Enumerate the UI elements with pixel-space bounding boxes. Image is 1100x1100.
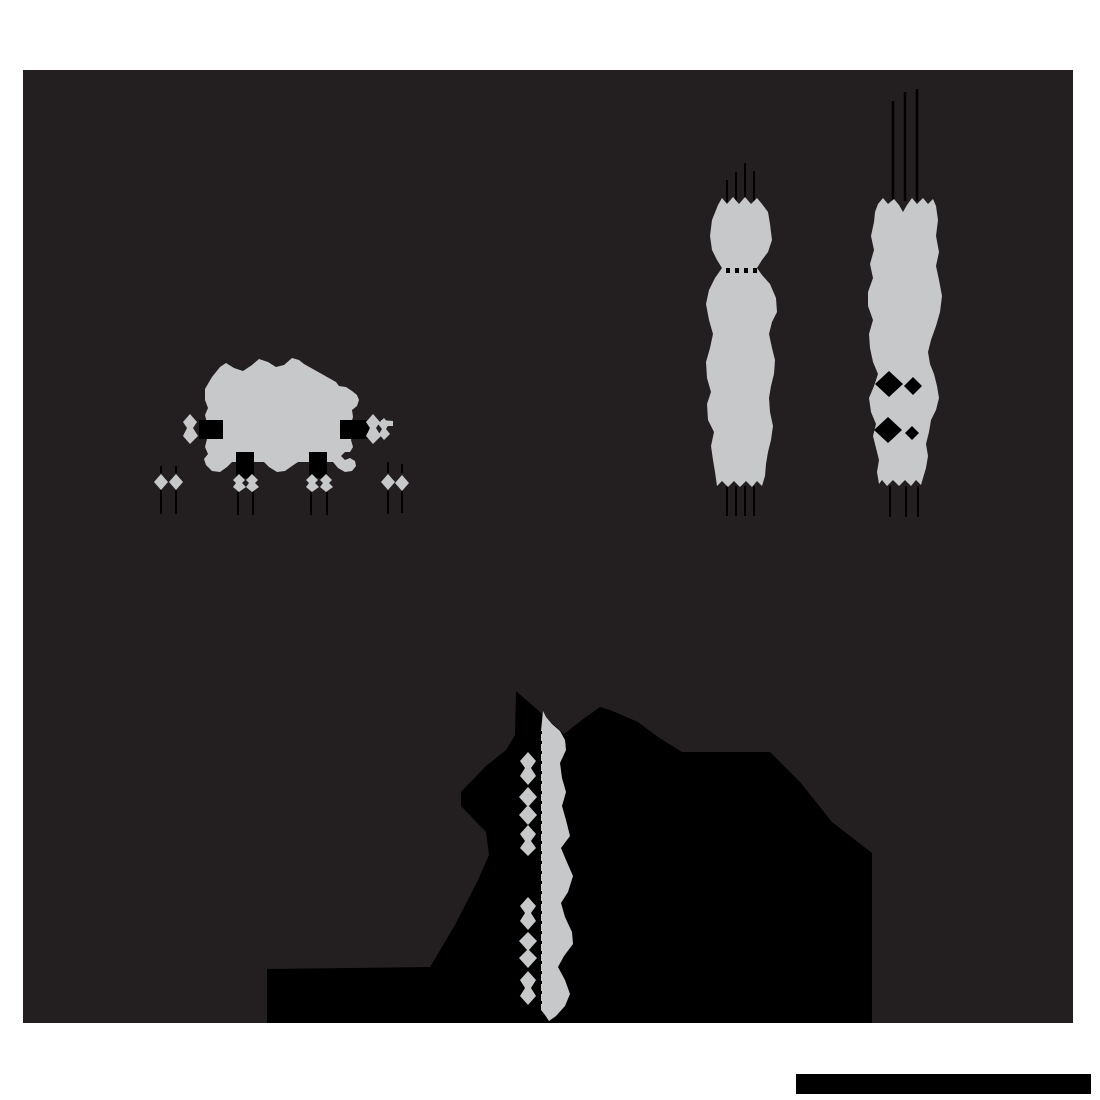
figure-canvas <box>0 0 1100 1100</box>
scale-bar <box>796 1074 1091 1094</box>
figure-page <box>0 0 1100 1100</box>
tower-left-body <box>706 197 777 487</box>
